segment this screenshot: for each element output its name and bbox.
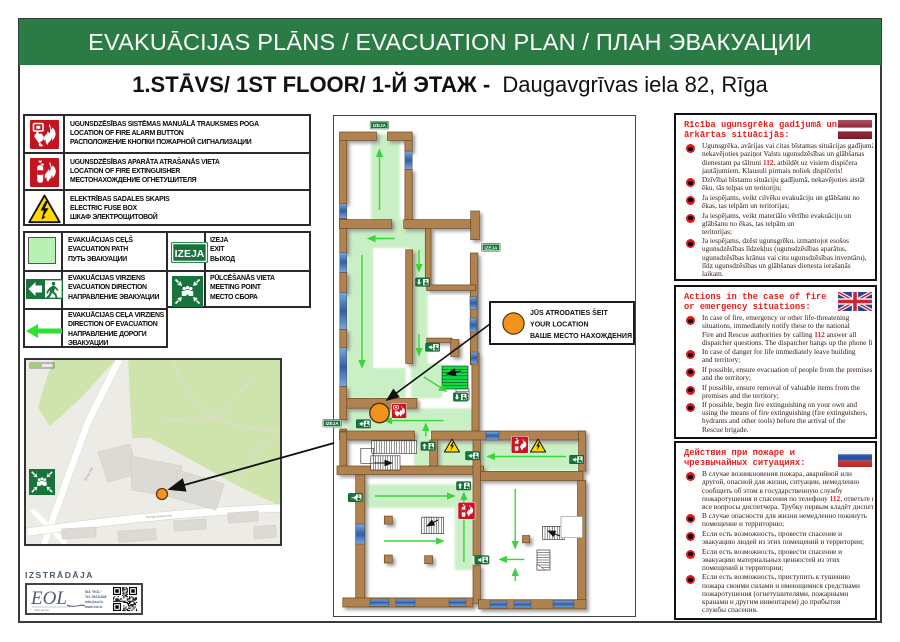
svg-text:vides serviss: vides serviss (34, 608, 50, 612)
svg-text:EOL: EOL (30, 588, 67, 609)
svg-text:SIA "EOL": SIA "EOL" (85, 590, 102, 594)
svg-text:JŪS ATRODATIES ŠEIT: JŪS ATRODATIES ŠEIT (530, 308, 608, 317)
svg-text:info@eol.lv: info@eol.lv (85, 600, 103, 604)
svg-text:IZEJA: IZEJA (484, 245, 498, 250)
svg-text:YOUR LOCATION: YOUR LOCATION (530, 322, 589, 329)
svg-text:IZEJA: IZEJA (175, 248, 205, 260)
svg-text:IZEJA: IZEJA (326, 421, 340, 426)
svg-text:Tel. 28311848: Tel. 28311848 (85, 595, 107, 599)
svg-text:IZEJA: IZEJA (373, 123, 387, 128)
svg-text:ВАШЕ МЕСТО НАХОЖДЕНИЯ: ВАШЕ МЕСТО НАХОЖДЕНИЯ (530, 333, 632, 340)
svg-text:www.eol.lv: www.eol.lv (84, 605, 103, 609)
